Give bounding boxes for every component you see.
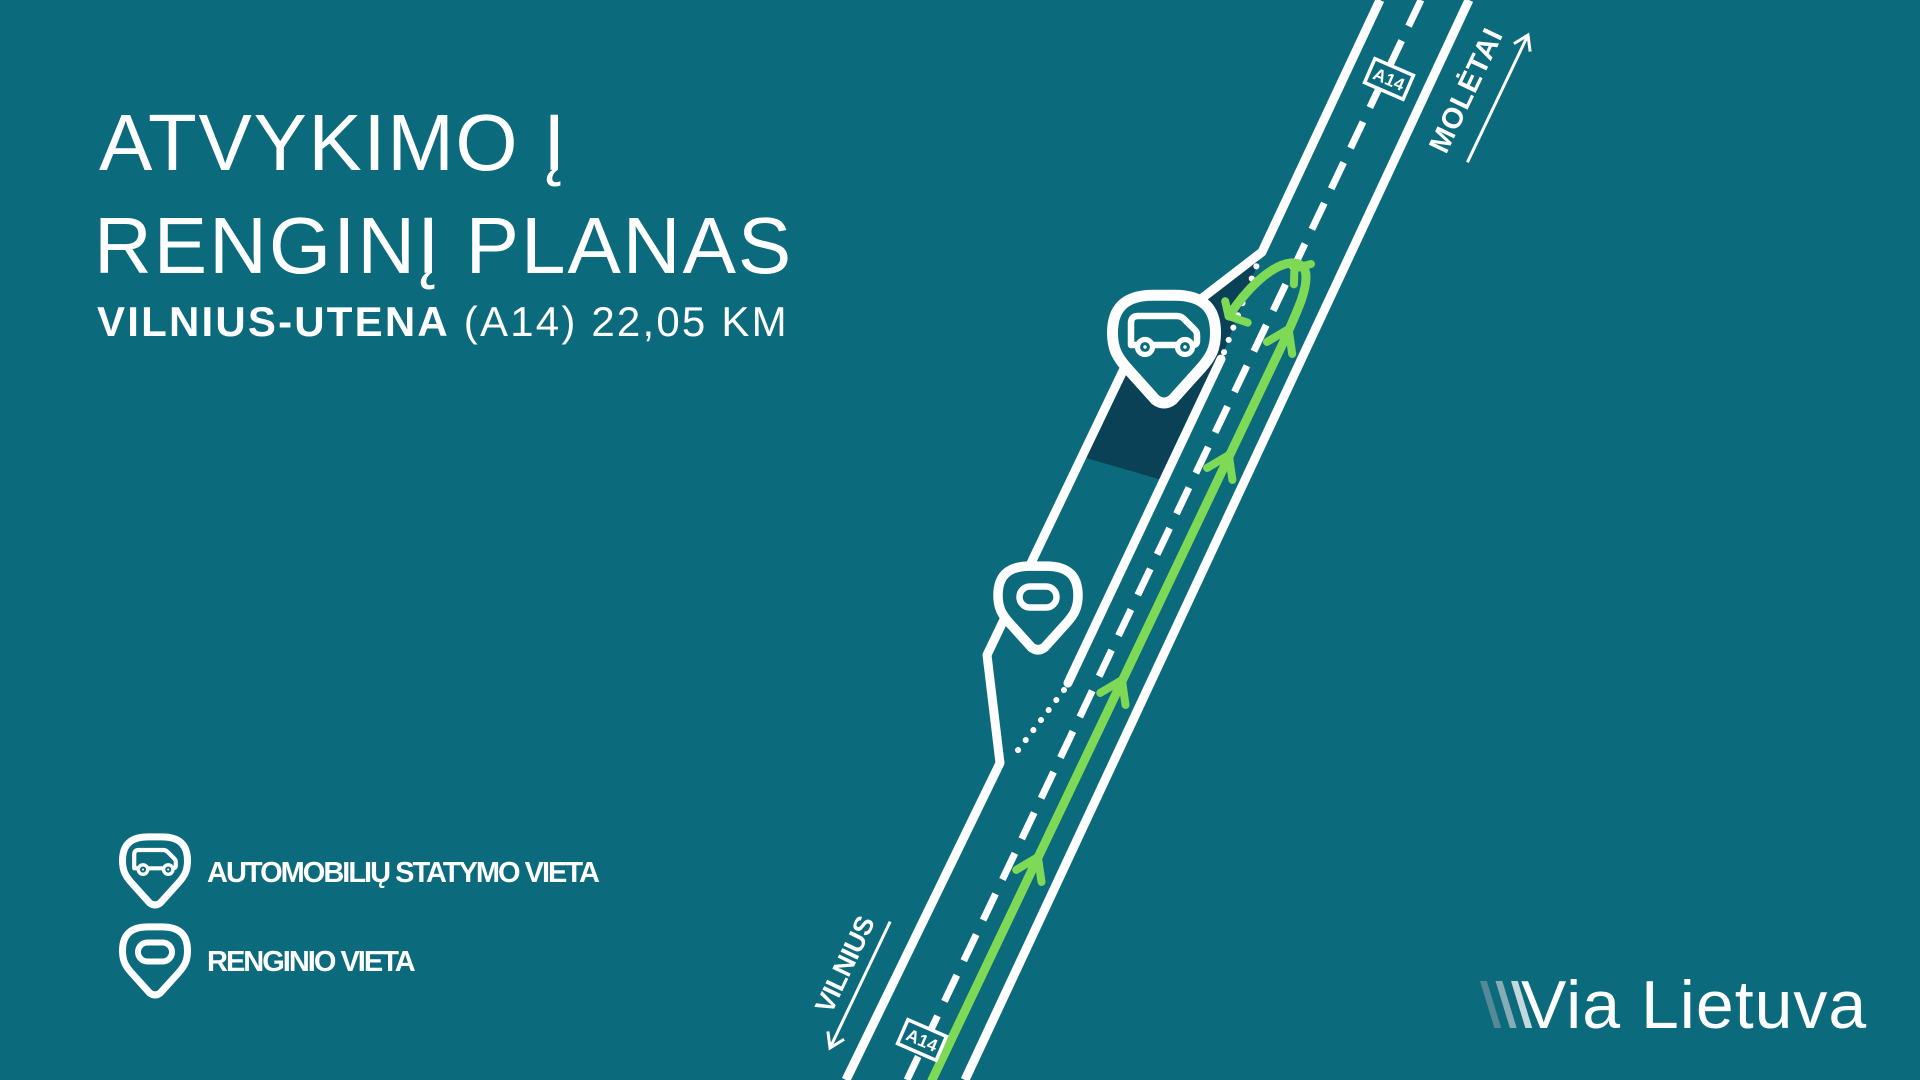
svg-text:ATVYKIMO Į: ATVYKIMO Į — [99, 98, 567, 187]
svg-text:RENGINĮ PLANAS: RENGINĮ PLANAS — [94, 201, 793, 290]
svg-text:RENGINIO VIETA: RENGINIO VIETA — [207, 946, 416, 978]
svg-text:VILNIUS-UTENA (A14) 22,05 KM: VILNIUS-UTENA (A14) 22,05 KM — [97, 298, 789, 345]
svg-text:AUTOMOBILIŲ STATYMO VIETA: AUTOMOBILIŲ STATYMO VIETA — [207, 857, 600, 889]
svg-text:Via Lietuva: Via Lietuva — [1521, 967, 1867, 1043]
